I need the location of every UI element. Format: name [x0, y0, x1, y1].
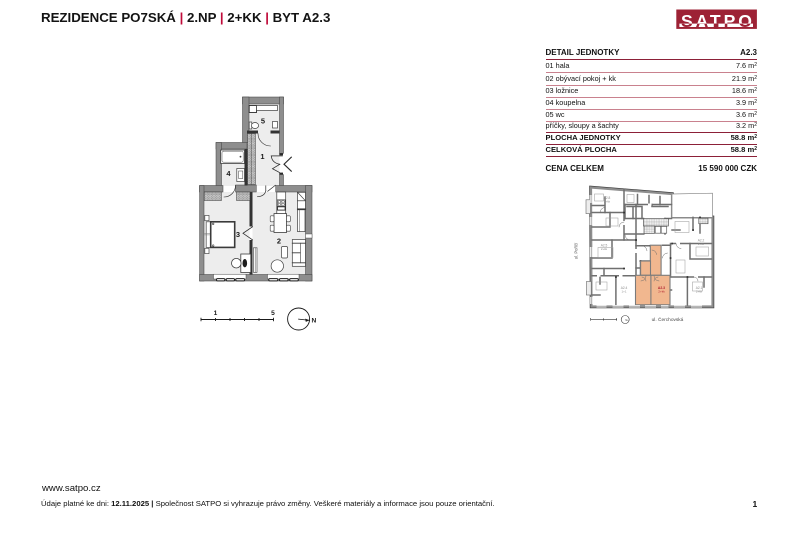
svg-text:N: N	[312, 318, 317, 325]
svg-text:5: 5	[261, 117, 265, 126]
svg-text:2+kk: 2+kk	[696, 290, 703, 294]
svg-text:1+1: 1+1	[622, 290, 627, 294]
svg-text:2: 2	[277, 237, 281, 246]
svg-text:3: 3	[236, 230, 240, 239]
svg-text:1: 1	[214, 310, 218, 317]
svg-text:2+kk: 2+kk	[658, 290, 665, 294]
svg-text:2+kk: 2+kk	[601, 247, 608, 251]
svg-text:ul. Poříčí: ul. Poříčí	[573, 242, 578, 259]
svg-text:2+kk: 2+kk	[604, 199, 611, 203]
svg-text:5: 5	[271, 310, 275, 317]
svg-text:ul. Čerchovská: ul. Čerchovská	[652, 316, 684, 323]
svg-text:2+kk: 2+kk	[698, 242, 705, 246]
svg-text:1: 1	[260, 152, 264, 161]
